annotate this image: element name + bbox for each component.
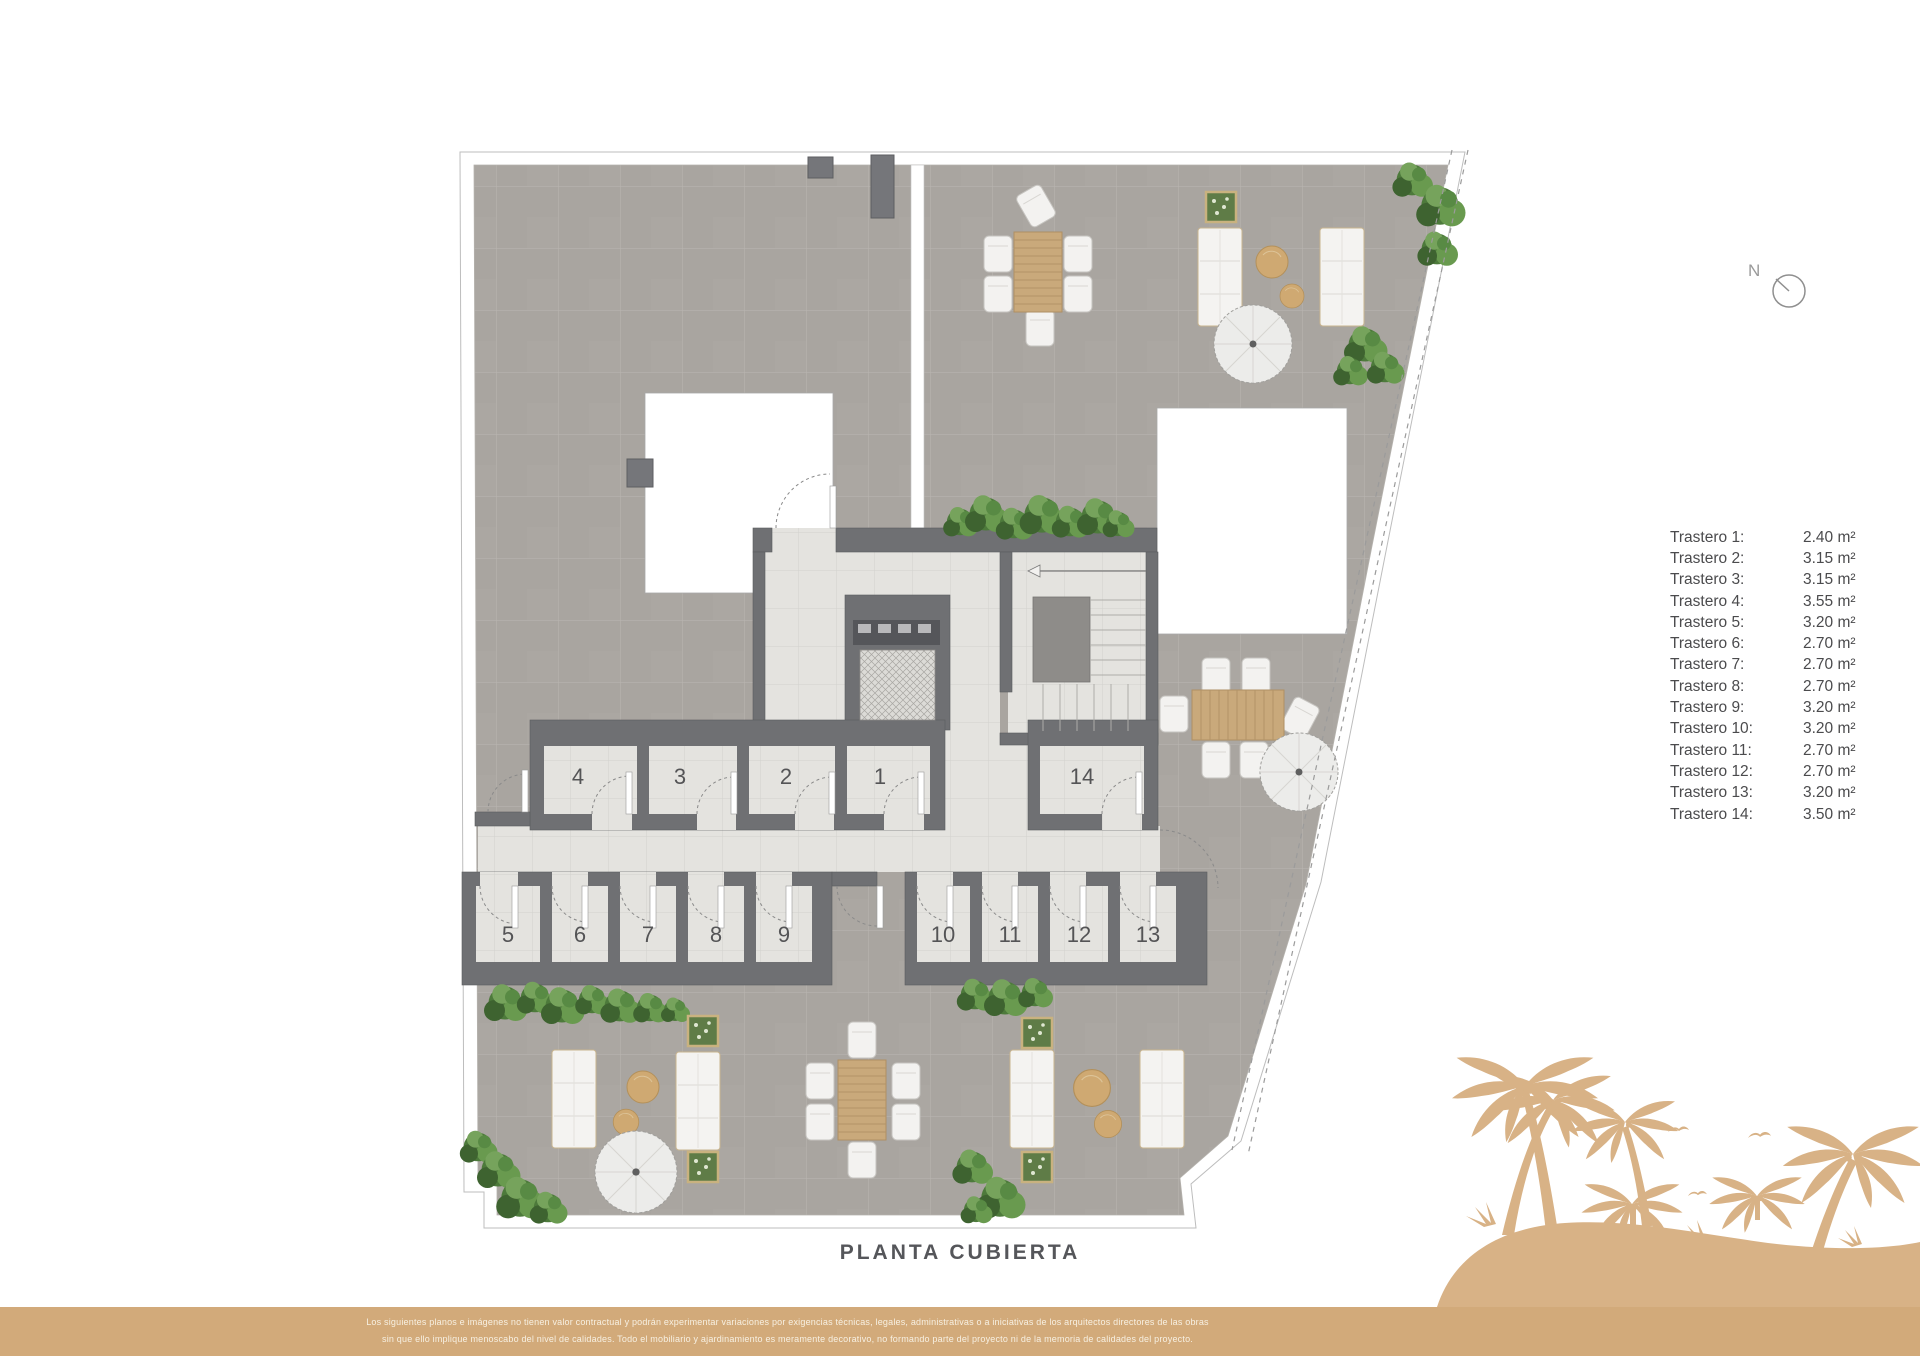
room-label-6: 6: [574, 922, 586, 947]
room-label-9: 9: [778, 922, 790, 947]
legend-room-label: Trastero 4:: [1670, 593, 1803, 611]
room-label-3: 3: [674, 764, 686, 789]
room-label-5: 5: [502, 922, 514, 947]
legend-room-area: 2.70 m²: [1803, 678, 1856, 696]
legend-room-label: Trastero 3:: [1670, 571, 1803, 589]
palm-beach-illustration: [1437, 1056, 1920, 1307]
legend-row: Trastero 2: 3.15 m²: [1670, 548, 1920, 569]
legend-room-label: Trastero 1:: [1670, 529, 1803, 547]
legend-room-label: Trastero 6:: [1670, 635, 1803, 653]
legend-room-area: 2.70 m²: [1803, 763, 1856, 781]
legend-row: Trastero 3: 3.15 m²: [1670, 570, 1920, 591]
room-label-7: 7: [642, 922, 654, 947]
legend-row: Trastero 5: 3.20 m²: [1670, 612, 1920, 633]
room-label-14: 14: [1070, 764, 1094, 789]
legend-room-label: Trastero 13:: [1670, 784, 1803, 802]
legend-row: Trastero 13: 3.20 m²: [1670, 783, 1920, 804]
room-label-12: 12: [1067, 922, 1091, 947]
room-label-1: 1: [874, 764, 886, 789]
chimney: [871, 155, 894, 218]
compass: N: [1748, 261, 1805, 307]
legend-room-area: 2.70 m²: [1803, 742, 1856, 760]
legend-room-area: 3.20 m²: [1803, 699, 1856, 717]
legend-room-label: Trastero 7:: [1670, 656, 1803, 674]
floor-plan-drawing: 1 2 3 4 5 6 7 8 9 10 11 12 13 14 N: [0, 0, 1920, 1370]
disclaimer-line-2: sin que ello implique menoscabo del nive…: [0, 1331, 1575, 1348]
page-title: PLANTA CUBIERTA: [0, 1241, 1920, 1265]
legend-room-label: Trastero 8:: [1670, 678, 1803, 696]
legend-room-label: Trastero 12:: [1670, 763, 1803, 781]
legend-row: Trastero 4: 3.55 m²: [1670, 591, 1920, 612]
legend-row: Trastero 11: 2.70 m²: [1670, 740, 1920, 761]
legend-row: Trastero 7: 2.70 m²: [1670, 655, 1920, 676]
small-palm: [1709, 1177, 1805, 1237]
legend-room-area: 3.20 m²: [1803, 784, 1856, 802]
room-label-13: 13: [1136, 922, 1160, 947]
disclaimer-line-1: Los siguientes planos e imágenes no tien…: [0, 1314, 1575, 1331]
legend-row: Trastero 14: 3.50 m²: [1670, 804, 1920, 825]
legend-room-area: 2.40 m²: [1803, 529, 1856, 547]
legend-room-area: 3.50 m²: [1803, 806, 1856, 824]
room-label-2: 2: [780, 764, 792, 789]
legend-room-area: 2.70 m²: [1803, 656, 1856, 674]
bird-icon: [1748, 1132, 1771, 1138]
bird-icon: [1688, 1191, 1707, 1196]
legend-room-label: Trastero 5:: [1670, 614, 1803, 632]
room-label-10: 10: [931, 922, 955, 947]
chimney: [808, 157, 833, 178]
page: 1 2 3 4 5 6 7 8 9 10 11 12 13 14 N: [0, 0, 1920, 1370]
legend-row: Trastero 8: 2.70 m²: [1670, 676, 1920, 697]
legend-room-label: Trastero 11:: [1670, 742, 1803, 760]
legend-row: Trastero 6: 2.70 m²: [1670, 633, 1920, 654]
storage-area-legend: Trastero 1: 2.40 m² Trastero 2: 3.15 m² …: [1670, 527, 1920, 825]
disclaimer-text: Los siguientes planos e imágenes no tien…: [0, 1314, 1575, 1348]
roof-element: [627, 459, 653, 487]
room-label-8: 8: [710, 922, 722, 947]
legend-room-area: 3.20 m²: [1803, 614, 1856, 632]
legend-room-label: Trastero 2:: [1670, 550, 1803, 568]
legend-room-area: 3.15 m²: [1803, 571, 1856, 589]
legend-row: Trastero 10: 3.20 m²: [1670, 719, 1920, 740]
legend-room-area: 3.15 m²: [1803, 550, 1856, 568]
elevator: [853, 620, 940, 720]
legend-room-label: Trastero 10:: [1670, 720, 1803, 738]
legend-row: Trastero 1: 2.40 m²: [1670, 527, 1920, 548]
compass-north-label: N: [1748, 261, 1760, 280]
legend-room-label: Trastero 14:: [1670, 806, 1803, 824]
room-label-4: 4: [572, 764, 584, 789]
legend-room-area: 3.20 m²: [1803, 720, 1856, 738]
legend-row: Trastero 12: 2.70 m²: [1670, 761, 1920, 782]
compass-needle: [1776, 279, 1789, 291]
disclaimer-footer: Los siguientes planos e imágenes no tien…: [0, 1307, 1920, 1356]
legend-row: Trastero 9: 3.20 m²: [1670, 697, 1920, 718]
room-label-11: 11: [999, 922, 1022, 947]
legend-room-area: 3.55 m²: [1803, 593, 1856, 611]
legend-room-label: Trastero 9:: [1670, 699, 1803, 717]
legend-room-area: 2.70 m²: [1803, 635, 1856, 653]
